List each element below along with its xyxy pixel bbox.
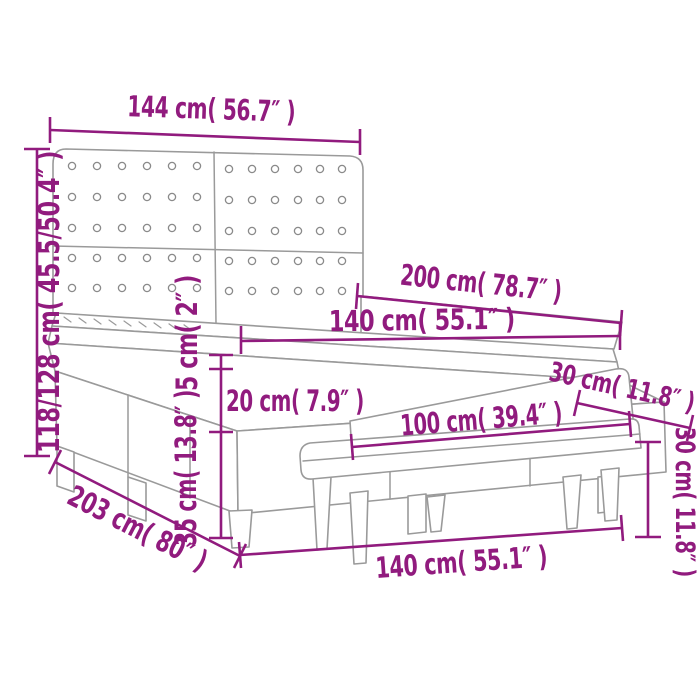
- dim-bed-width-label: 140 cm( 55.1″ ): [374, 539, 548, 585]
- dim-headboard-height-label: 118/128 cm( 45.5/50.4″ ): [32, 151, 66, 453]
- dim-mattress-height-label: 20 cm( 7.9″ ): [226, 384, 364, 418]
- bed-dimension-diagram: 144 cm( 56.7″ ) 118/128 cm( 45.5/50.4″ )…: [0, 0, 700, 700]
- diagram-canvas: 144 cm( 56.7″ ) 118/128 cm( 45.5/50.4″ )…: [0, 0, 700, 700]
- dim-bed-length-label: 200 cm( 78.7″ ): [399, 258, 564, 309]
- dim-bench-height-label: 30 cm( 11.8″ ): [669, 427, 700, 577]
- dim-headboard-height: 118/128 cm( 45.5/50.4″ ): [24, 149, 66, 456]
- dim-headboard-width: 144 cm( 56.7″ ): [50, 89, 360, 155]
- dim-headboard-width-label: 144 cm( 56.7″ ): [127, 89, 296, 129]
- dim-mattress-width-label: 140 cm( 55.1″ ): [329, 302, 515, 339]
- dim-topper-height-label: 5 cm( 2″ ): [170, 275, 204, 391]
- headboard: [53, 149, 363, 334]
